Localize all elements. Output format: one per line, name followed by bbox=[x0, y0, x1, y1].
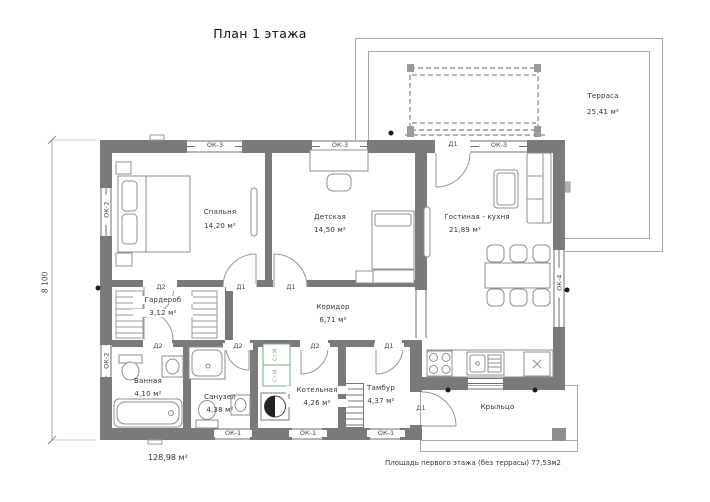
window-tag-ok2-1: ОК-2 bbox=[103, 195, 110, 225]
door-tag-d2-wc: Д2 bbox=[223, 343, 253, 350]
room-label-wc: Санузел bbox=[191, 393, 249, 401]
building-area-label: 128,98 м² bbox=[148, 453, 248, 462]
door-tag-d1-bedroom: Д1 bbox=[226, 284, 256, 291]
room-area-kids: 14,50 м² bbox=[300, 226, 360, 234]
room-area-living: 21,89 м² bbox=[420, 226, 510, 234]
door-tag-d1-kids: Д1 bbox=[276, 284, 306, 291]
door-tag-d1-vestibule: Д1 bbox=[374, 343, 404, 350]
room-area-vestibule: 4,37 м² bbox=[354, 397, 408, 405]
room-label-wardrobe: Гардероб bbox=[133, 296, 193, 304]
window-tag-ok1-3: ОК-1 bbox=[367, 430, 405, 437]
room-label-porch: Крыльцо bbox=[460, 403, 535, 411]
room-label-bedroom: Спальня bbox=[190, 208, 250, 216]
dimension-line bbox=[48, 136, 96, 444]
floorplan-drawing bbox=[0, 0, 710, 502]
room-label-bath: Ванная bbox=[118, 377, 178, 385]
room-area-bedroom: 14,20 м² bbox=[190, 222, 250, 230]
room-area-wardrobe: 3,12 м² bbox=[133, 309, 193, 317]
window-tag-ok3-1: ОК-3 bbox=[195, 142, 235, 149]
dining-table bbox=[485, 263, 550, 288]
kitchen-counter bbox=[427, 350, 553, 377]
window-tag-ok1-1: ОК-1 bbox=[214, 430, 252, 437]
page-title: План 1 этажа bbox=[210, 27, 310, 41]
window-tag-ok3-2: ОК-3 bbox=[320, 142, 360, 149]
floorplan-page: План 1 этажа Терраса 25,41 м² Спальня 14… bbox=[0, 0, 710, 502]
door-tag-d2-bath: Д2 bbox=[143, 343, 173, 350]
room-label-living: Гостиная - кухня bbox=[432, 213, 522, 221]
room-label-boiler: Котельная bbox=[286, 386, 348, 394]
room-area-terrace: 25,41 м² bbox=[572, 108, 634, 116]
room-area-boiler: 4,26 м² bbox=[286, 399, 348, 407]
window-tag-ok4: ОК-4 bbox=[556, 268, 563, 298]
floor-area-note: Площадь первого этажа (без террасы) 77,5… bbox=[385, 459, 605, 467]
window-tag-ok3-3: ОК-3 bbox=[479, 142, 519, 149]
door-tag-d2-wardrobe: Д2 bbox=[146, 284, 176, 291]
toilet-wc bbox=[196, 420, 218, 428]
room-area-wc: 4,38 м² bbox=[191, 406, 249, 414]
sofa bbox=[527, 153, 551, 223]
room-label-corridor: Коридор bbox=[303, 303, 363, 311]
room-label-vestibule: Тамбур bbox=[354, 384, 408, 392]
door-tag-d1-entrance: Д1 bbox=[407, 405, 435, 412]
door-tag-d1-terrace: Д1 bbox=[438, 141, 468, 148]
pergola-dashed-outline bbox=[405, 64, 545, 137]
porch-outline bbox=[421, 386, 578, 452]
washer-tag-2: Ст.М. bbox=[274, 360, 280, 389]
window-tag-ok2-2: ОК-2 bbox=[103, 346, 110, 376]
dimension-height-label: 8 100 bbox=[42, 262, 51, 302]
room-label-kids: Детская bbox=[300, 213, 360, 221]
room-area-bath: 4,10 м² bbox=[118, 390, 178, 398]
window-tag-ok1-2: ОК-1 bbox=[289, 430, 327, 437]
tv-bedroom bbox=[251, 188, 257, 236]
door-tag-d2-boiler: Д2 bbox=[300, 343, 330, 350]
room-label-terrace: Терраса bbox=[572, 92, 634, 100]
room-area-corridor: 6,71 м² bbox=[303, 316, 363, 324]
